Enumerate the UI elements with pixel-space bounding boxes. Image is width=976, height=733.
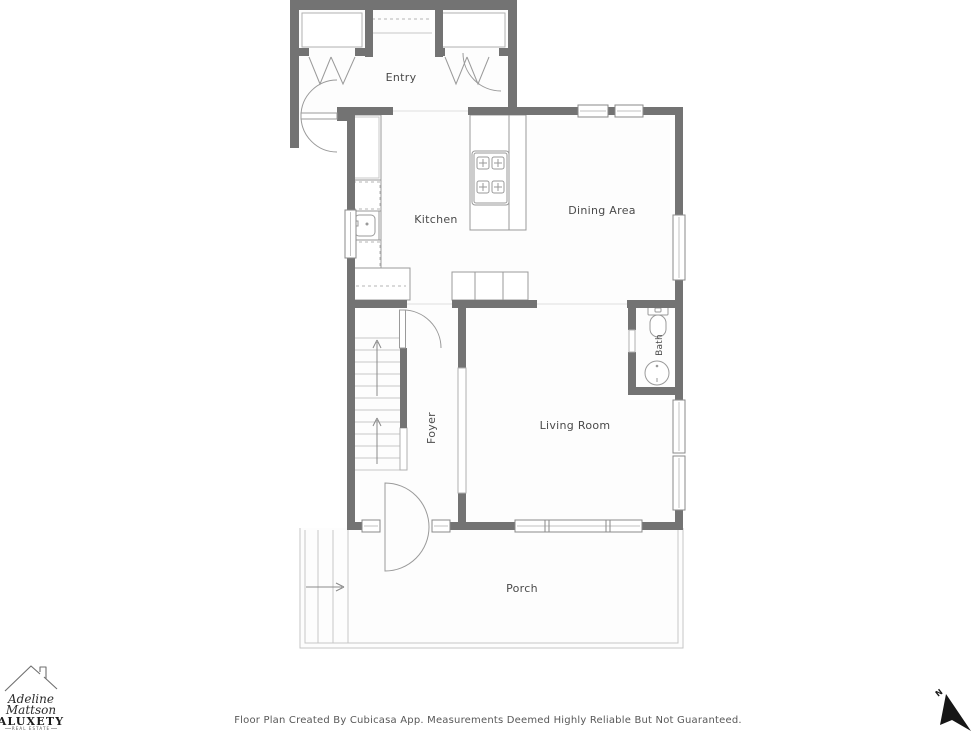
kitchen-counter-bottom — [452, 272, 528, 300]
window — [515, 520, 642, 532]
stair-rail — [400, 428, 407, 470]
footer-disclaimer: Floor Plan Created By Cubicasa App. Meas… — [234, 715, 742, 726]
window — [615, 105, 643, 117]
window — [362, 520, 380, 532]
window — [673, 400, 685, 453]
brand-logo: Adeline Mattson ALUXETY REAL ESTATE — [0, 666, 64, 731]
window — [578, 105, 608, 117]
porch-floor — [300, 528, 683, 648]
entry-closet-right — [438, 13, 505, 47]
bath-sink — [645, 361, 669, 385]
window — [432, 520, 450, 532]
floor-plan-svg: Entry Kitchen Dining Area Bath Foyer Liv… — [0, 0, 976, 733]
room-label-porch: Porch — [506, 582, 538, 595]
toilet — [648, 306, 668, 337]
room-label-foyer: Foyer — [425, 412, 438, 444]
bath-door — [629, 330, 635, 352]
window — [345, 210, 356, 258]
room-label-dining: Dining Area — [568, 204, 636, 217]
north-arrow-icon: N — [934, 687, 971, 731]
entry-closet-left — [302, 13, 362, 47]
room-label-living: Living Room — [540, 419, 611, 432]
logo-tagline: REAL ESTATE — [12, 726, 50, 731]
floor-plan-page: Entry Kitchen Dining Area Bath Foyer Liv… — [0, 0, 976, 733]
logo-roof-icon — [5, 666, 57, 691]
kitchen-counter-corner — [352, 268, 410, 300]
north-label: N — [934, 687, 945, 698]
north-arrow-shape — [940, 694, 971, 731]
room-label-bath: Bath — [655, 334, 665, 356]
stove — [472, 151, 509, 205]
room-label-entry: Entry — [386, 71, 417, 84]
room-label-kitchen: Kitchen — [414, 213, 457, 226]
window — [673, 215, 685, 280]
window — [673, 456, 685, 510]
cased-opening — [458, 368, 466, 493]
